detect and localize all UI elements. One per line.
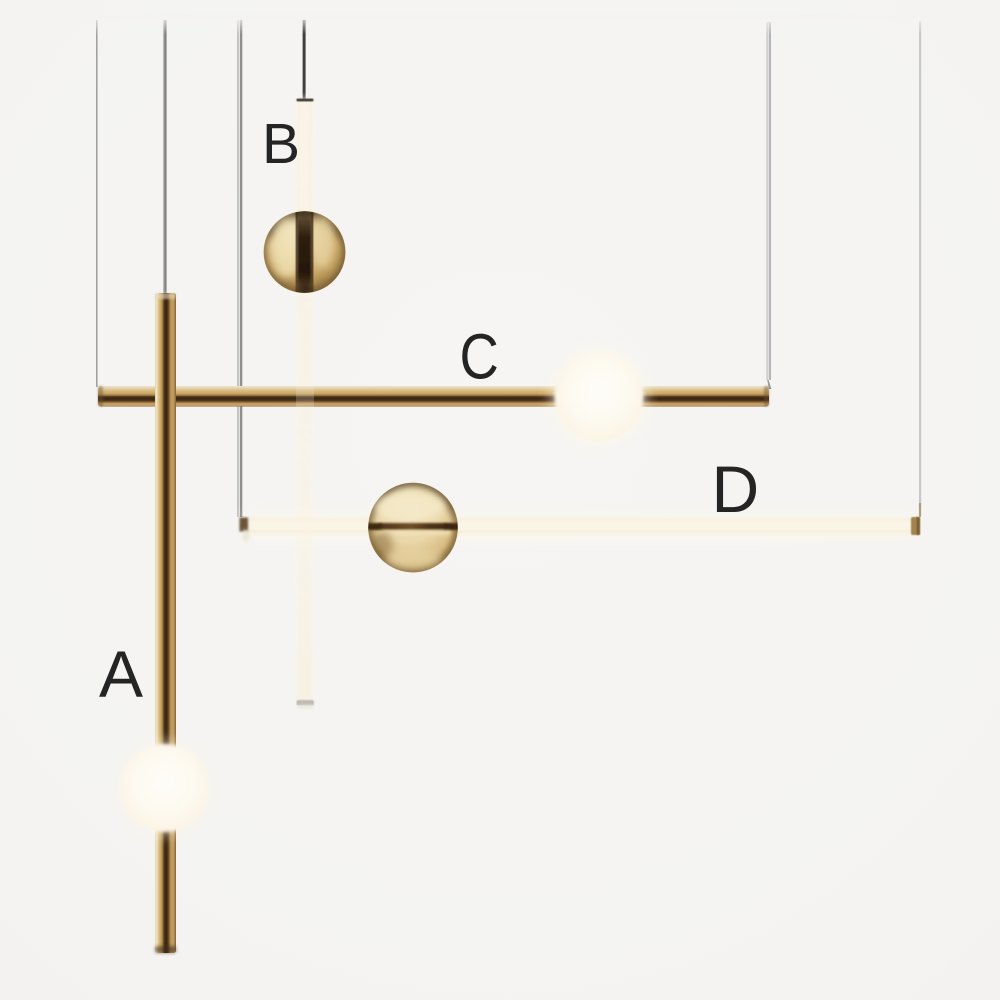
svg-text:C: C: [460, 320, 499, 392]
svg-text:A: A: [99, 637, 143, 711]
svg-text:D: D: [712, 452, 760, 526]
svg-text:B: B: [262, 112, 300, 176]
